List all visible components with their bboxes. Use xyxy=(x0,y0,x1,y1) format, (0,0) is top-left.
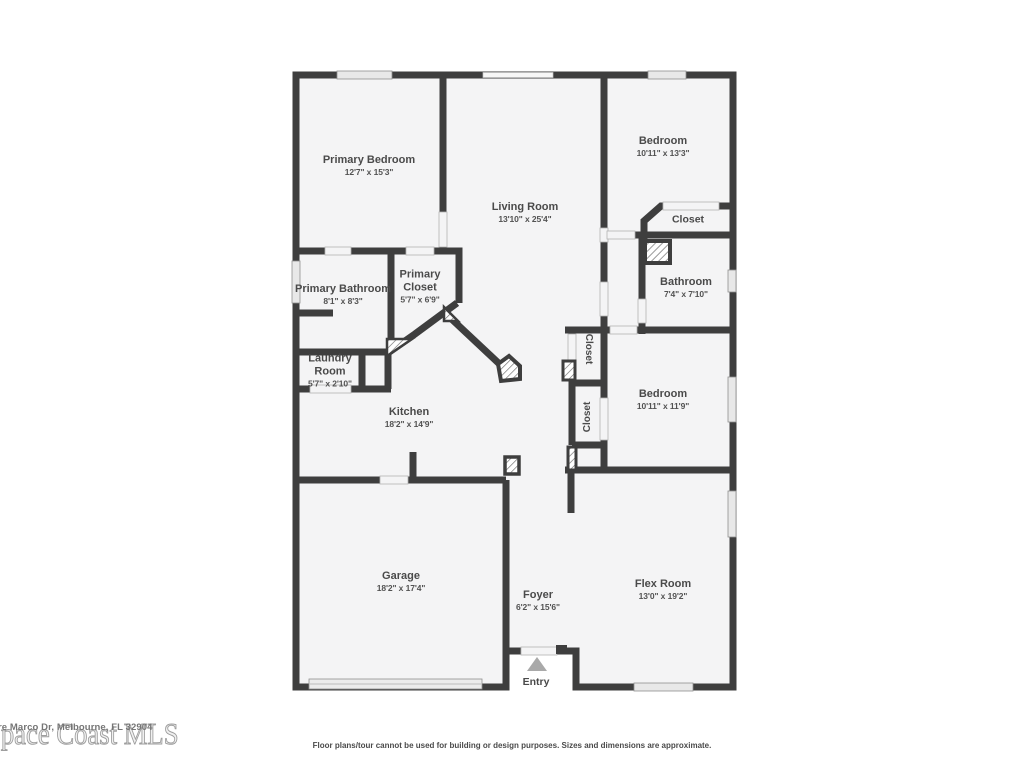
room-label-garage: Garage 18'2" x 17'4" xyxy=(377,570,426,594)
room-name: Primary Bathroom xyxy=(283,283,403,296)
room-name: Closet xyxy=(582,402,594,433)
room-label-foyer: Foyer 6'2" x 15'6" xyxy=(516,589,560,613)
room-dims: 18'2" x 17'4" xyxy=(377,583,426,594)
room-label-closet-top-right: Closet xyxy=(672,214,704,227)
room-label-laundry-room: Laundry Room 5'7" x 2'10" xyxy=(299,353,361,390)
garage-door xyxy=(309,679,482,689)
room-dims: 13'0" x 19'2" xyxy=(635,591,691,602)
room-name: Garage xyxy=(377,570,426,583)
room-dims: 10'11" x 11'9" xyxy=(637,401,689,412)
entry-label: Entry xyxy=(523,676,550,688)
room-dims: 12'7" x 15'3" xyxy=(323,167,415,178)
room-label-bathroom: Bathroom 7'4" x 7'10" xyxy=(660,276,712,300)
room-dims: 5'7" x 6'9" xyxy=(387,295,453,306)
room-label-flex-room: Flex Room 13'0" x 19'2" xyxy=(635,578,691,602)
room-dims: 6'2" x 15'6" xyxy=(516,602,560,613)
entry-door-leaf xyxy=(556,645,567,654)
room-label-closet-hall-upper: Closet xyxy=(582,334,594,365)
room-dims: 10'11" x 13'3" xyxy=(637,148,690,159)
room-name: Laundry Room xyxy=(299,353,361,379)
entry-direction-icon xyxy=(527,657,547,671)
room-name: Bedroom xyxy=(637,135,690,148)
room-name: Bathroom xyxy=(660,276,712,289)
room-name: Primary Closet xyxy=(387,269,453,295)
room-name: Kitchen xyxy=(385,406,434,419)
room-dims: 5'7" x 2'10" xyxy=(299,379,361,390)
room-label-closet-hall-lower: Closet xyxy=(582,402,594,433)
room-label-living-room: Living Room 13'10" x 25'4" xyxy=(492,201,559,225)
room-label-primary-bedroom: Primary Bedroom 12'7" x 15'3" xyxy=(323,154,415,178)
disclaimer-text: Floor plans/tour cannot be used for buil… xyxy=(0,741,1024,750)
room-label-primary-closet: Primary Closet 5'7" x 6'9" xyxy=(387,269,453,306)
room-dims: 7'4" x 7'10" xyxy=(660,289,712,300)
room-dims: 8'1" x 8'3" xyxy=(283,296,403,307)
room-name: Closet xyxy=(672,214,704,227)
floor-plan-drawing xyxy=(0,0,1024,768)
floor-plan-page: Primary Bedroom 12'7" x 15'3" Living Roo… xyxy=(0,0,1024,768)
living-room-top-window xyxy=(483,73,553,78)
room-label-bedroom-right: Bedroom 10'11" x 11'9" xyxy=(637,388,689,412)
room-name: Living Room xyxy=(492,201,559,214)
room-name: Primary Bedroom xyxy=(323,154,415,167)
room-dims: 18'2" x 14'9" xyxy=(385,419,434,430)
room-name: Foyer xyxy=(516,589,560,602)
room-name: Flex Room xyxy=(635,578,691,591)
room-label-bedroom-top-right: Bedroom 10'11" x 13'3" xyxy=(637,135,690,159)
room-name: Bedroom xyxy=(637,388,689,401)
room-label-kitchen: Kitchen 18'2" x 14'9" xyxy=(385,406,434,430)
room-dims: 13'10" x 25'4" xyxy=(492,214,559,225)
room-label-primary-bathroom: Primary Bathroom 8'1" x 8'3" xyxy=(283,283,403,307)
room-name: Closet xyxy=(582,334,594,365)
